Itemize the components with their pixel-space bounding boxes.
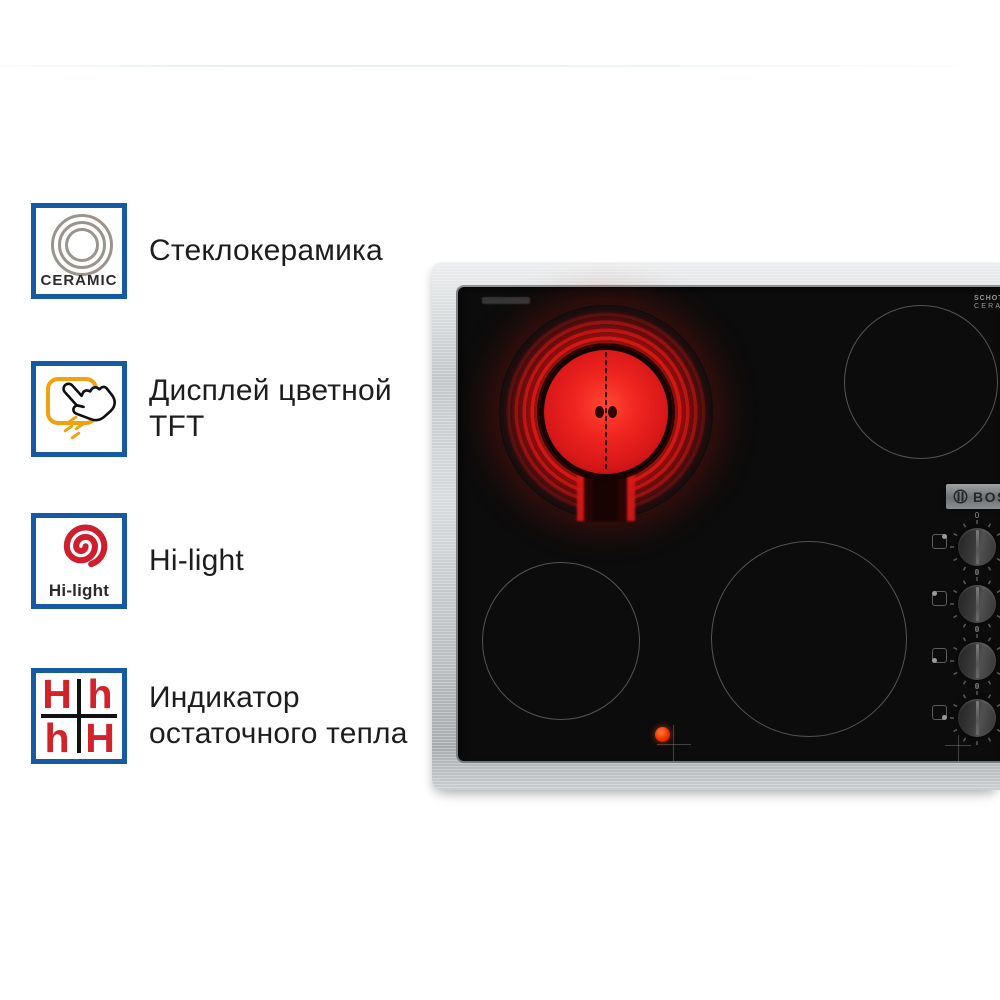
zone-indicator-icon	[932, 534, 947, 549]
heat-letter: h	[81, 675, 119, 713]
alignment-cross	[673, 725, 674, 763]
hilight-spiral-icon: Hi-light	[31, 513, 127, 609]
burner-knob: 0	[949, 633, 1000, 689]
divider	[0, 65, 1000, 67]
knob-dial	[958, 699, 996, 737]
cross-line-horizontal	[41, 714, 117, 718]
heat-letter: H	[38, 675, 76, 713]
product-image: CERAMIC Стеклокерамика Дисплей цветной T…	[0, 0, 1000, 1000]
feature-label: Дисплей цветной TFT	[149, 373, 434, 445]
heat-letter: h	[38, 718, 76, 756]
burner-sensor-dot	[608, 406, 617, 418]
knob-dial	[958, 528, 996, 566]
burner-sensor-dot	[595, 406, 604, 418]
feature-row-tft-display: Дисплей цветной TFT	[31, 361, 434, 457]
hh-letter-grid: H h h H	[36, 673, 122, 759]
residual-heat-indicator-light	[655, 727, 670, 742]
schott-ceran-label: SCHOTT CERAN®	[974, 295, 1000, 311]
burner-knob: 0	[949, 690, 1000, 746]
schott-line: SCHOTT	[974, 295, 1000, 303]
zone-indicator-icon	[932, 648, 947, 663]
alignment-cross	[657, 744, 691, 745]
zone-indicator-icon	[932, 705, 947, 720]
feature-row-hilight: Hi-light Hi-light	[31, 513, 434, 609]
burner-knob: 0	[949, 576, 1000, 632]
knob-dial	[958, 585, 996, 623]
burner-outline-front-right-large	[711, 541, 907, 737]
feature-label: Индикатор остаточного тепла	[149, 680, 434, 752]
burner-inner-zone	[539, 345, 673, 479]
feature-row-residual-heat: H h h H Индикатор остаточного тепла	[31, 668, 434, 764]
burner-outline-rear-right	[844, 305, 998, 459]
bosch-symbol-icon	[953, 489, 968, 504]
burner-knob: 0	[949, 519, 1000, 575]
burner-divider-line	[605, 352, 607, 472]
ceramic-ring	[65, 228, 99, 262]
residual-heat-icon: H h h H	[31, 668, 127, 764]
knob-dial	[958, 642, 996, 680]
burner-outline-front-left-small	[482, 562, 640, 720]
ceramic-rings-icon: CERAMIC	[31, 203, 127, 299]
ceran-line: CERAN®	[974, 303, 1000, 311]
burner-glowing	[499, 305, 713, 519]
hilight-badge-text: Hi-light	[36, 581, 122, 601]
zone-indicator-icon	[932, 591, 947, 606]
feature-label: Стеклокерамика	[149, 233, 434, 269]
bosch-logo: BOSCH	[946, 484, 1000, 509]
bosch-brand-text: BOSCH	[973, 489, 1000, 505]
heating-spiral-glyph	[49, 520, 109, 580]
touch-display-icon	[31, 361, 127, 457]
glass-ceramic-surface: SCHOTT CERAN®	[456, 285, 1000, 763]
ceramic-badge-text: CERAMIC	[36, 272, 122, 289]
model-marking	[482, 297, 530, 304]
cooktop: SCHOTT CERAN®	[432, 262, 1000, 790]
feature-label: Hi-light	[149, 543, 434, 579]
alignment-cross	[958, 735, 959, 761]
heat-letter: H	[81, 718, 119, 756]
feature-row-ceramic: CERAMIC Стеклокерамика	[31, 203, 434, 299]
pointing-hand-icon	[54, 372, 116, 438]
